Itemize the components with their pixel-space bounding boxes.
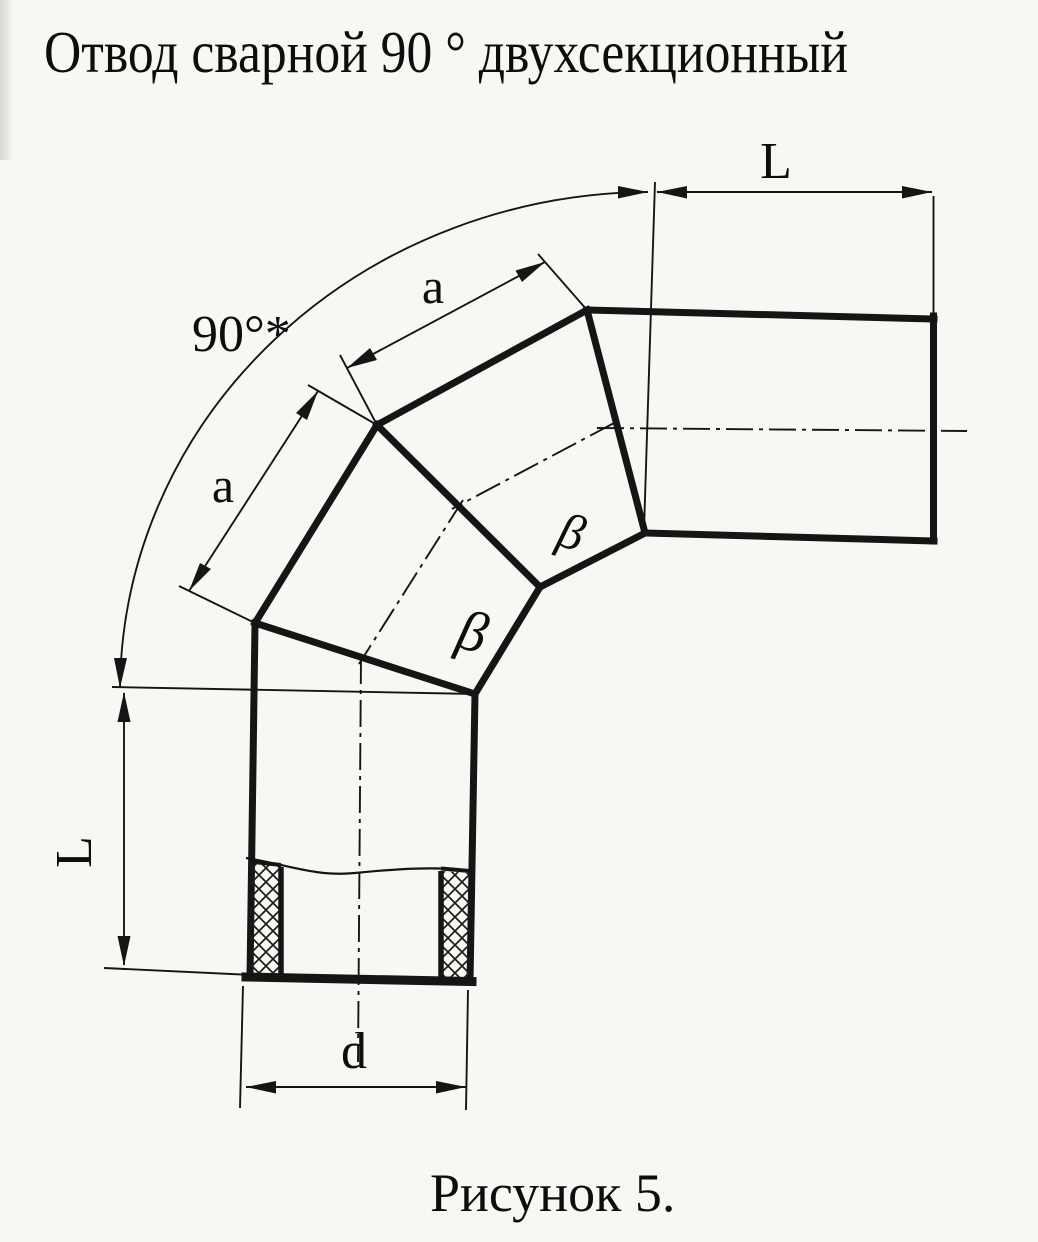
- arrow-L-top-left: [657, 186, 687, 199]
- ext-line-a1-right: [538, 254, 587, 310]
- elbow-drawing: 90°* L L a: [0, 0, 1038, 1242]
- centerline-section2: [359, 500, 463, 664]
- figure-caption: Рисунок 5.: [430, 1162, 675, 1224]
- arrow-L-left-bottom: [118, 936, 131, 966]
- arrow-a-upper-right: [516, 262, 546, 282]
- ext-line-pipe-bottom: [104, 968, 252, 975]
- arrow-L-left-top: [118, 692, 131, 722]
- arc-arrow-bottom: [114, 658, 127, 688]
- arrow-L-top-right: [902, 186, 932, 199]
- label-length-left: L: [46, 836, 103, 868]
- section2-outer-edge: [255, 425, 377, 623]
- arc-arrow-top: [618, 186, 648, 199]
- arrow-a-upper-left: [347, 348, 377, 368]
- dim-diameter: d: [240, 986, 468, 1110]
- vpipe-right-edge: [470, 694, 475, 981]
- ext-line-d-right: [466, 990, 468, 1110]
- ext-line-d-left: [240, 986, 243, 1108]
- arrow-a-lower-top: [296, 391, 318, 420]
- arrow-d-right: [436, 1081, 466, 1094]
- label-a-lower: a: [212, 457, 234, 513]
- elbow-outline: [246, 310, 934, 982]
- ext-line-weld1: [644, 182, 655, 530]
- label-angle: 90°*: [192, 306, 291, 363]
- label-length-top: L: [760, 133, 792, 190]
- label-diameter: d: [341, 1023, 367, 1080]
- ext-line-weld3: [112, 687, 476, 694]
- centerline-vertical: [358, 657, 361, 1062]
- section1-outer-edge: [377, 310, 587, 425]
- ext-line-a2-bottom: [179, 586, 255, 623]
- label-beta-upper: β: [551, 501, 591, 562]
- hpipe-top-edge: [587, 310, 934, 319]
- weld-seam-1: [587, 310, 645, 533]
- hpipe-bottom-edge: [645, 533, 934, 541]
- arrow-d-left: [246, 1081, 276, 1094]
- centerline-horizontal: [597, 428, 967, 431]
- dim-length-top: L: [644, 133, 934, 530]
- dim-section-a-upper: a: [340, 254, 587, 425]
- label-beta-lower: β: [450, 598, 494, 666]
- scanned-page: Отвод сварной 90 ° двухсекционный: [0, 0, 1038, 1242]
- bevel-angle-marks: β β: [450, 501, 591, 666]
- arrow-a-lower-bottom: [189, 563, 211, 591]
- wall-hatch-right: [441, 871, 470, 978]
- dim-angle-arc: 90°*: [114, 186, 648, 688]
- label-a-upper: a: [422, 258, 444, 314]
- angle-arc: [120, 192, 648, 688]
- weld-seam-3: [255, 623, 475, 694]
- dim-line-a-lower: [189, 391, 318, 591]
- centerline-section1: [452, 423, 614, 509]
- wall-hatch-left: [250, 862, 281, 974]
